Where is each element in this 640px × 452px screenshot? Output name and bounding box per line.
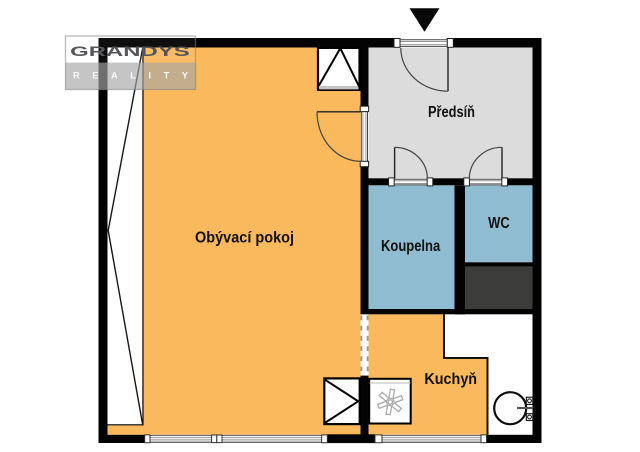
- svg-text:Obývací pokoj: Obývací pokoj: [195, 229, 294, 246]
- svg-text:WC: WC: [488, 215, 510, 232]
- svg-text:Kuchyň: Kuchyň: [424, 371, 477, 388]
- svg-text:GRANDYS: GRANDYS: [70, 44, 190, 59]
- svg-text:Předsíň: Předsíň: [428, 104, 475, 121]
- svg-text:Koupelna: Koupelna: [381, 238, 440, 255]
